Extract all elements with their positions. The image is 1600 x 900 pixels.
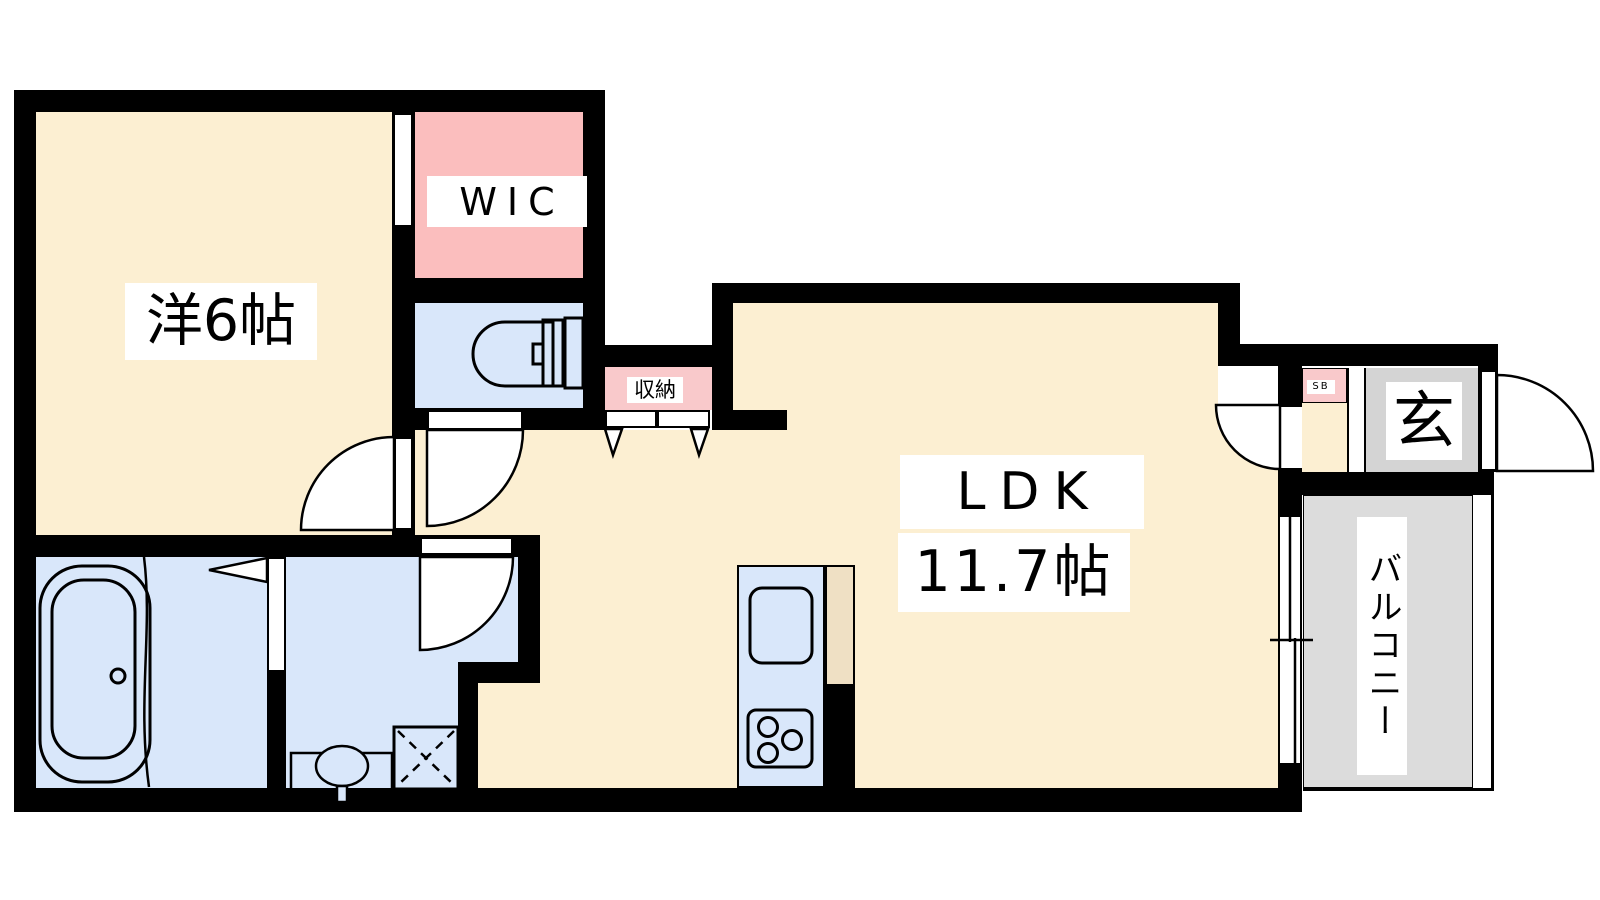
bath-door-panel (267, 557, 286, 672)
wall-entrance-top (1218, 344, 1498, 366)
toilet-door-leaf (427, 410, 523, 430)
label-balcony: バルコニー (1357, 517, 1407, 775)
ldk-doorway (1280, 405, 1302, 470)
genkan-step-strip (1347, 368, 1366, 472)
label-ldk: LDK (900, 455, 1144, 529)
kitchen-counter (737, 565, 825, 788)
wall-wic-bottom (392, 278, 605, 303)
wall-washroom-right-lo (458, 683, 478, 788)
balcony-outer-line-right (1491, 472, 1494, 791)
wall-washroom-right-up (518, 557, 540, 662)
label-storage: 収納 (627, 377, 683, 403)
room-bathroom (36, 557, 267, 788)
wall-bedroom-top (14, 90, 605, 112)
wall-block-right (583, 90, 605, 430)
balcony-window (1278, 515, 1302, 765)
room-washroom-lower (286, 662, 458, 788)
room-toilet (415, 303, 583, 408)
label-bedroom: 洋6帖 (125, 283, 317, 360)
wall-left (14, 90, 36, 812)
floor-ldk-upper (733, 303, 1218, 430)
wall-bottom (14, 788, 1302, 812)
front-door-arc (1497, 375, 1593, 471)
kitchen-side-counter (825, 565, 855, 686)
wall-ldk-top (712, 283, 1240, 303)
label-wic: WIC (427, 176, 587, 227)
balcony-outer-line-bottom (1303, 788, 1494, 791)
wall-storage-stub (712, 410, 787, 430)
closet-door-panel-right (657, 410, 710, 428)
wall-ldk-right-upper (1218, 303, 1240, 346)
bedroom-door-leaf (394, 437, 413, 530)
wic-opening (393, 113, 413, 227)
wall-below-window (1278, 765, 1302, 812)
wall-washroom-stub (458, 662, 540, 683)
label-entrance: 玄 (1386, 382, 1462, 460)
closet-door-panel-left (605, 410, 657, 428)
floor-entrance-hall (1302, 403, 1347, 472)
floor-plan: 洋6帖 WIC 収納 LDK 11.7帖 SB 玄 バルコニー (0, 0, 1600, 900)
front-door-leaf (1480, 370, 1497, 471)
label-ldk-size: 11.7帖 (898, 533, 1130, 612)
washroom-door-leaf (420, 537, 513, 555)
label-shoe-box: SB (1307, 380, 1335, 394)
wall-balcony-top (1278, 472, 1493, 495)
room-washroom-upper (286, 557, 518, 664)
wall-storage-top (583, 345, 733, 367)
wall-kitchen-partition (823, 686, 855, 788)
